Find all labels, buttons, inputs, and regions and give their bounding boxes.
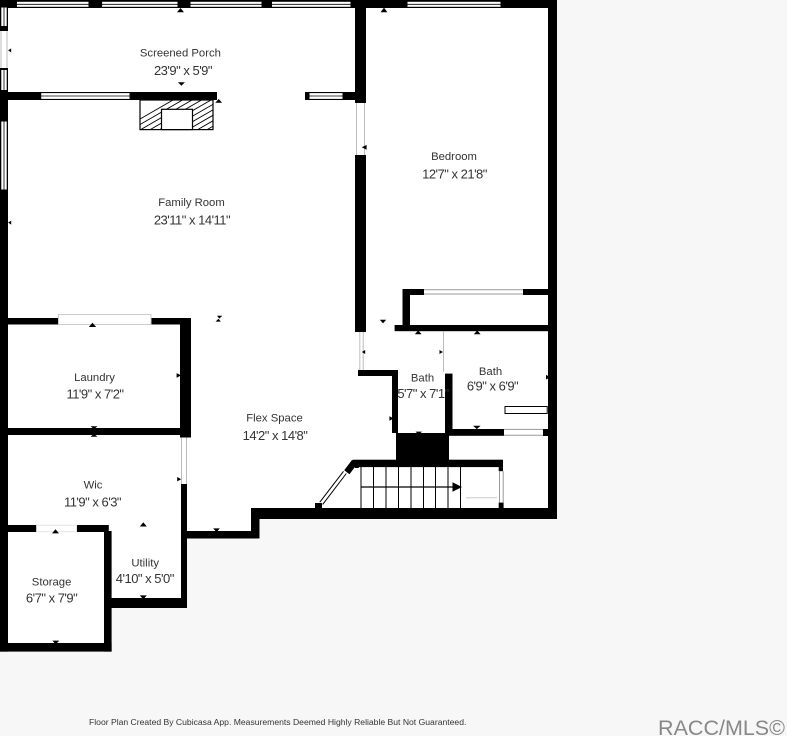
svg-text:Flex Space: Flex Space — [246, 413, 303, 425]
svg-text:Bath: Bath — [479, 366, 502, 378]
svg-text:Bath: Bath — [411, 372, 434, 384]
svg-text:4'10" x 5'0": 4'10" x 5'0" — [116, 571, 175, 586]
svg-text:6'9" x 6'9": 6'9" x 6'9" — [467, 379, 519, 394]
svg-text:11'9" x 7'2": 11'9" x 7'2" — [66, 386, 124, 401]
svg-text:23'11" x 14'11": 23'11" x 14'11" — [154, 212, 231, 227]
svg-text:Laundry: Laundry — [74, 372, 115, 384]
svg-text:Bedroom: Bedroom — [431, 151, 477, 163]
svg-text:14'2" x 14'8": 14'2" x 14'8" — [243, 428, 309, 443]
svg-text:Wic: Wic — [84, 479, 103, 491]
svg-text:6'7" x 7'9": 6'7" x 7'9" — [26, 591, 78, 606]
svg-text:Family Room: Family Room — [158, 197, 225, 209]
svg-text:Utility: Utility — [131, 557, 159, 569]
svg-text:23'9" x 5'9": 23'9" x 5'9" — [154, 63, 213, 78]
svg-text:Floor Plan Created By Cubicasa: Floor Plan Created By Cubicasa App. Meas… — [89, 717, 466, 727]
svg-text:Screened Porch: Screened Porch — [140, 47, 221, 59]
svg-text:Storage: Storage — [32, 576, 72, 588]
svg-text:5'7" x 7'1": 5'7" x 7'1" — [397, 386, 449, 401]
svg-text:12'7" x 21'8": 12'7" x 21'8" — [422, 167, 488, 182]
svg-text:11'9" x 6'3": 11'9" x 6'3" — [64, 495, 122, 510]
svg-text:RACC/MLS©: RACC/MLS© — [658, 716, 785, 736]
